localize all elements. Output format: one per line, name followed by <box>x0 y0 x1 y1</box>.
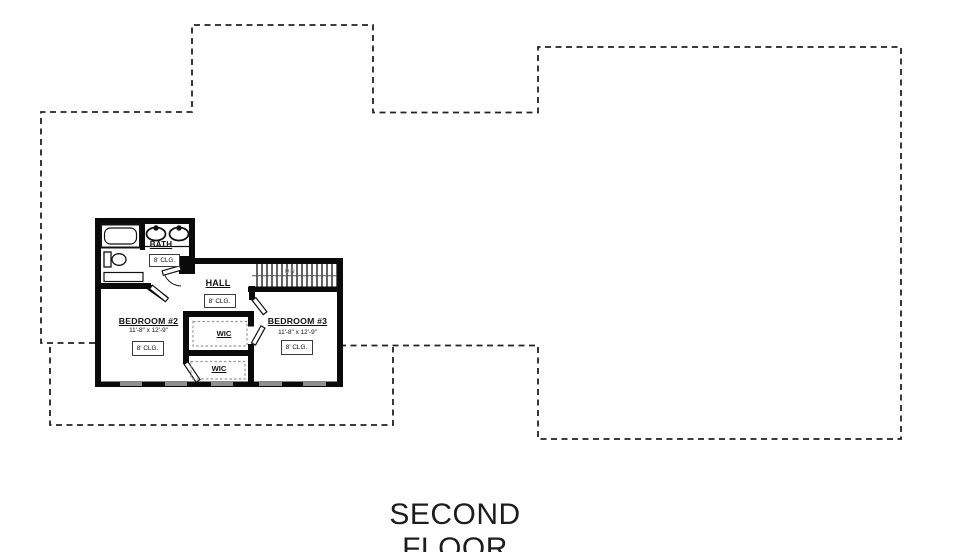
bedroom3-dimensions: 11'-8" x 12'-9" <box>261 330 334 337</box>
bathtub-inner <box>105 228 137 244</box>
bedroom3-label: BEDROOM #3 <box>261 317 334 326</box>
bedroom3-door-leaf <box>252 298 267 315</box>
hall-label: HALL <box>199 279 237 288</box>
bath-door-leaf <box>162 266 181 276</box>
bedroom2-label: BEDROOM #2 <box>112 317 185 326</box>
linen-shelf-shape <box>104 273 143 282</box>
sink-left-faucet <box>154 226 158 230</box>
bedroom2-door-leaf <box>150 285 169 301</box>
toilet-tank-shape <box>104 252 111 267</box>
hall-ceiling-box: 8' CLG. <box>204 294 236 308</box>
floor-plan-page: BATH 8' CLG. HALL 8' CLG. BEDROOM #2 11'… <box>0 0 956 552</box>
bedroom2-ceiling-label: 8' CLG. <box>137 345 158 352</box>
bath-door-corner-block <box>179 256 195 274</box>
toilet-bowl-shape <box>112 254 126 266</box>
staircase <box>252 264 337 287</box>
wic-upper-label: WIC <box>207 330 241 338</box>
bedroom3-ceiling-box: 8' CLG. <box>281 340 313 355</box>
bath-ceiling-box: 8' CLG. <box>149 254 180 267</box>
bedroom2-ceiling-box: 8' CLG. <box>132 341 164 356</box>
floor-plan-drawing <box>0 0 956 552</box>
bath-label: BATH <box>144 241 178 249</box>
bath-ceiling-label: 8' CLG. <box>154 257 175 264</box>
stairs-dn-label: DN <box>285 269 296 275</box>
wic-lower-label: WIC <box>202 365 236 373</box>
hall-ceiling-label: 8' CLG. <box>209 298 230 305</box>
sink-right-faucet <box>177 226 181 230</box>
sheet-title: SECOND FLOOR <box>356 498 554 552</box>
bedroom2-dimensions: 11'-8" x 12'-9" <box>112 328 185 335</box>
bedroom3-ceiling-label: 8' CLG. <box>286 344 307 351</box>
